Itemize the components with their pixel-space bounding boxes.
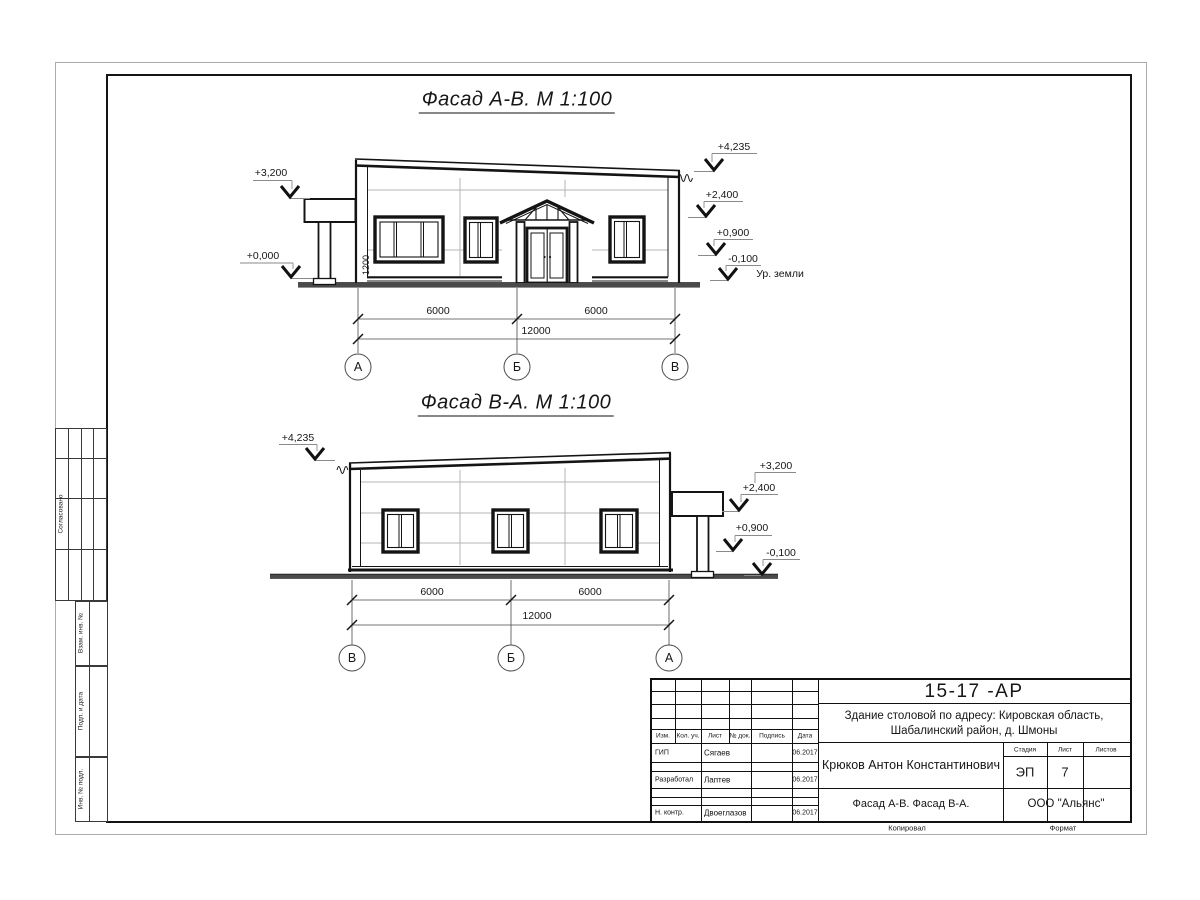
- col-kol-uch: Кол. уч.: [676, 733, 699, 740]
- elevation-mark-ab-0000: +0,000: [247, 250, 279, 262]
- dim-ba-6000-right: 6000: [578, 586, 601, 598]
- dim-1200-vertical: 1200: [361, 255, 371, 275]
- axis-bubble-ba-v: В: [348, 651, 356, 665]
- row3-role: Н. контр.: [655, 810, 684, 817]
- row3-date: 06.2017: [792, 810, 817, 817]
- author-name: Крюков Антон Константинович: [822, 758, 1000, 772]
- document-number: 15-17 -АР: [924, 681, 1023, 703]
- project-address-line2: Шабалинский район, д. Шмоны: [891, 725, 1058, 737]
- dim-ab-6000-right: 6000: [584, 305, 607, 317]
- elevation-mark-ab-4235: +4,235: [718, 141, 750, 153]
- elevation-mark-ba-0900: +0,900: [736, 522, 768, 534]
- ground-level-label: Ур. земли: [756, 268, 804, 280]
- axis-bubble-ab-a: А: [354, 360, 362, 374]
- dim-ab-12000: 12000: [521, 325, 550, 337]
- row1-name: Сягаев: [704, 749, 730, 758]
- row2-date: 06.2017: [792, 777, 817, 784]
- elevation-mark-ab-3200: +3,200: [255, 167, 287, 179]
- sheets-column-label: Листов: [1095, 747, 1116, 754]
- col-doc: № док.: [730, 733, 751, 740]
- elevation-mark-ba-2400: +2,400: [743, 482, 775, 494]
- col-sign: Подпись: [759, 733, 785, 740]
- row2-role: Разработал: [655, 777, 693, 784]
- stage-value: ЭП: [1016, 765, 1035, 780]
- elevation-mark-ba-3200: +3,200: [760, 460, 792, 472]
- axis-bubble-ab-b: Б: [513, 360, 521, 374]
- col-izm: Изм.: [656, 733, 670, 740]
- elevation-mark-ab-0900: +0,900: [717, 227, 749, 239]
- axis-bubble-ba-a: А: [665, 651, 673, 665]
- canopy-right: [672, 492, 723, 572]
- axis-bubble-ba-b: Б: [507, 651, 515, 665]
- axis-bubble-ab-v: В: [671, 360, 679, 374]
- col-date: Дата: [798, 733, 812, 740]
- row2-name: Лаптев: [704, 776, 730, 785]
- elevation-mark-ab-minus0100: -0,100: [728, 253, 758, 265]
- sheet-column-label: Лист: [1058, 747, 1072, 754]
- copied-label: Копировал: [888, 824, 926, 833]
- title-block: 15-17 -АР Здание столовой по адресу: Кир…: [650, 678, 1132, 823]
- dim-ab-6000-left: 6000: [426, 305, 449, 317]
- company-name: ООО "Альянс": [1028, 798, 1105, 810]
- dim-ba-6000-left: 6000: [420, 586, 443, 598]
- vzam-inv-label: Взам. инв. №: [78, 613, 85, 653]
- inv-podl-label: Инв. № подл.: [78, 769, 85, 810]
- facade-ba-title: Фасад В-А. М 1:100: [418, 392, 614, 417]
- approved-label: Согласовано: [58, 494, 65, 533]
- drawing-page: Фасад А-В. М 1:100 Фасад В-А. М 1:100 +3…: [0, 0, 1200, 900]
- facade-ab-title: Фасад А-В. М 1:100: [419, 89, 615, 114]
- project-address-line1: Здание столовой по адресу: Кировская обл…: [845, 710, 1104, 722]
- elevation-mark-ab-2400: +2,400: [706, 189, 738, 201]
- stage-column-label: Стадия: [1014, 747, 1036, 754]
- dim-ba-12000: 12000: [522, 610, 551, 622]
- drawing-title-cell: Фасад А-В. Фасад В-А.: [853, 798, 970, 810]
- col-list: Лист: [708, 733, 722, 740]
- facade-ba-drawing: [270, 445, 800, 672]
- canopy-left: [305, 199, 356, 279]
- row3-name: Двоеглазов: [704, 809, 747, 818]
- facade-ab-drawing: [240, 154, 761, 381]
- format-label: Формат: [1050, 824, 1077, 833]
- row1-date: 06.2017: [792, 750, 817, 757]
- row1-role: ГИП: [655, 750, 669, 757]
- elevation-mark-ba-4235: +4,235: [282, 432, 314, 444]
- sheet-number-value: 7: [1061, 765, 1068, 780]
- podp-data-label: Подп. и дата: [78, 692, 85, 730]
- elevation-mark-ba-minus0100: -0,100: [766, 547, 796, 559]
- entrance-porch: [500, 197, 594, 283]
